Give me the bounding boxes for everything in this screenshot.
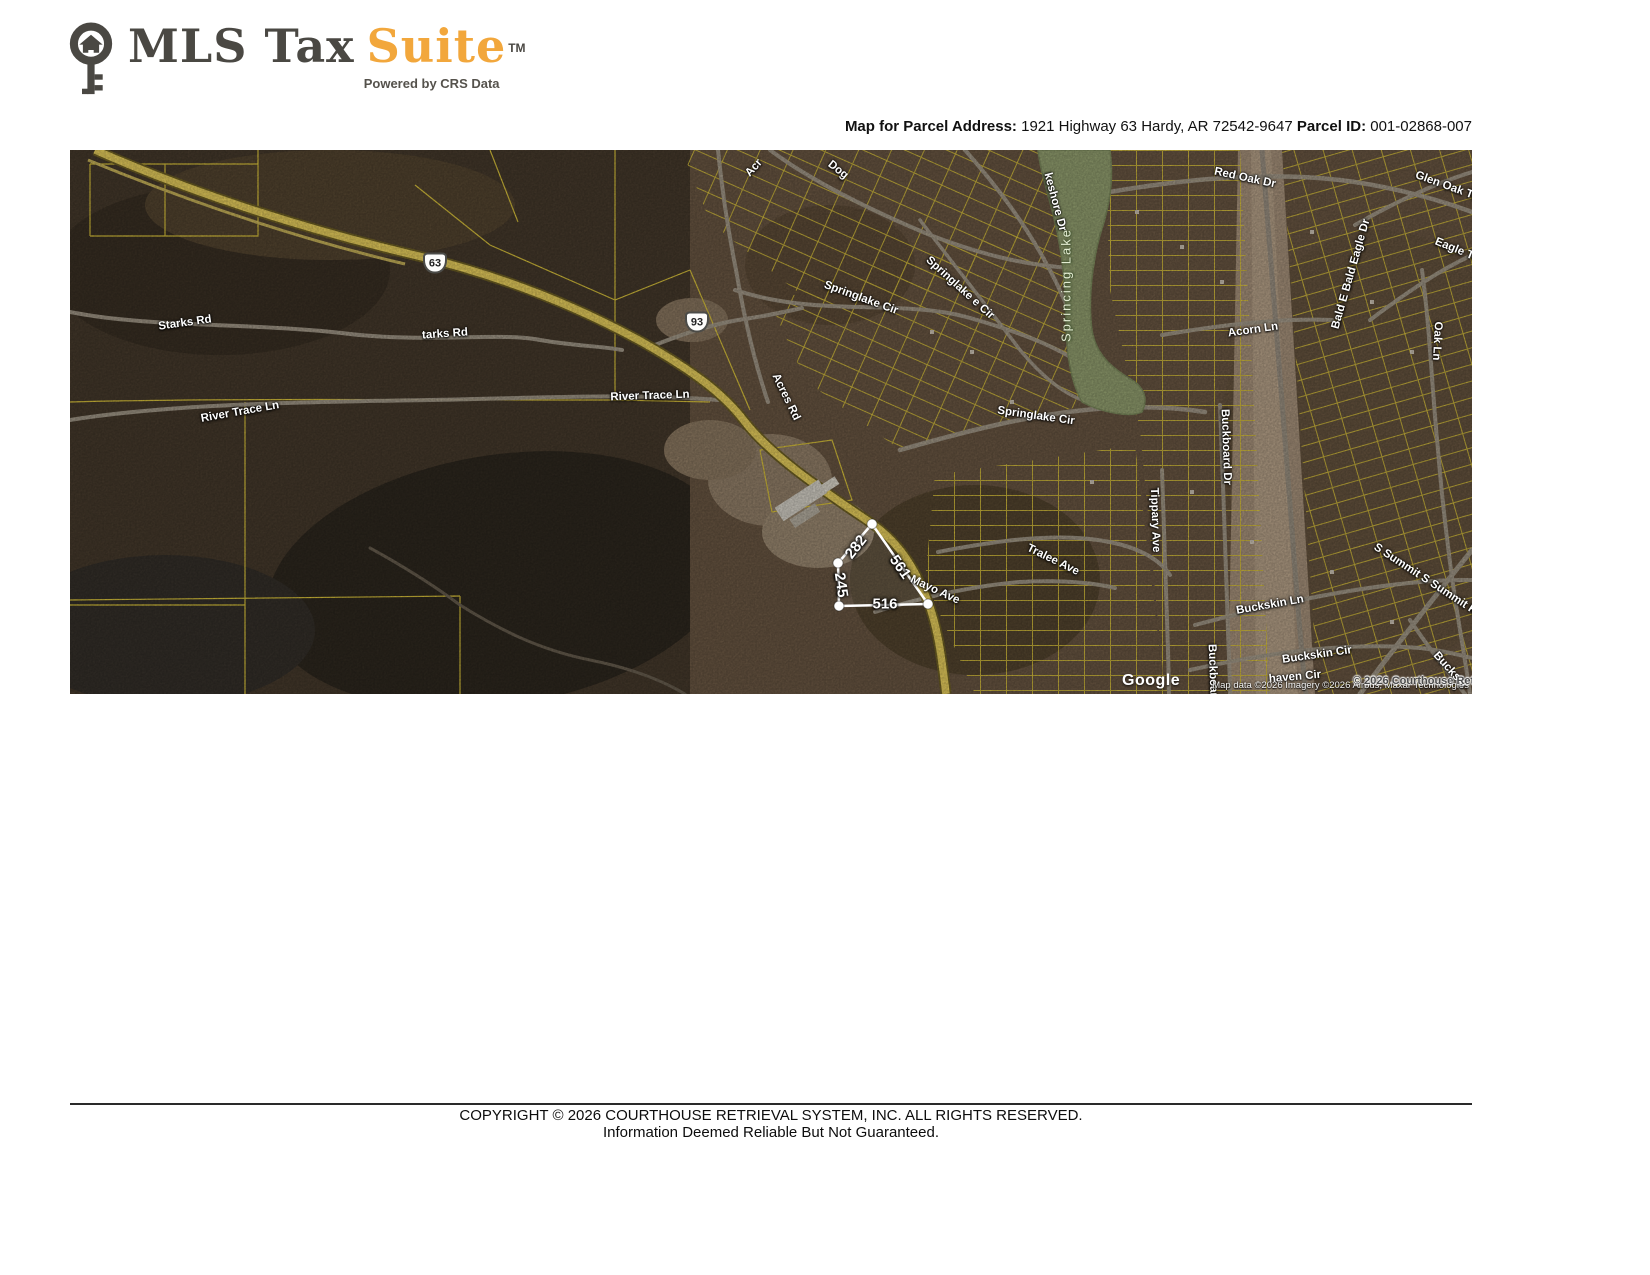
- crs-map-copyright: © 2026 Courthouse Retrieval System, Inc: [1353, 675, 1472, 687]
- page: MLS Tax Suite TM Powered by CRS Data Map…: [0, 0, 1650, 1275]
- mls-tax-suite-logo: MLS Tax Suite TM Powered by CRS Data: [64, 20, 526, 103]
- footer-divider: [70, 1103, 1472, 1105]
- address-label: Map for Parcel Address:: [845, 118, 1017, 135]
- lake-label-sprincing-lake: Sprincing Lake: [1059, 228, 1074, 342]
- google-logo[interactable]: Google: [1122, 672, 1180, 690]
- parcel-dimension-245: 245: [831, 571, 851, 598]
- footer: COPYRIGHT © 2026 COURTHOUSE RETRIEVAL SY…: [70, 1107, 1472, 1141]
- logo-wordmark: MLS Tax Suite TM Powered by CRS Data: [128, 20, 526, 91]
- footer-copyright-line: COPYRIGHT © 2026 COURTHOUSE RETRIEVAL SY…: [70, 1107, 1472, 1124]
- parcel-header: Map for Parcel Address: 1921 Highway 63 …: [845, 118, 1472, 135]
- footer-disclaimer-line: Information Deemed Reliable But Not Guar…: [70, 1124, 1472, 1141]
- parcel-id-label: Parcel ID:: [1297, 118, 1366, 135]
- parcel-dimension-516: 516: [872, 596, 897, 613]
- key-icon: [64, 20, 118, 103]
- logo-text-suite: Suite: [367, 20, 507, 72]
- logo-text-mls-tax: MLS Tax: [128, 20, 355, 72]
- parcel-id-value: 001-02868-007: [1370, 118, 1472, 135]
- logo-tagline: Powered by CRS Data: [128, 76, 526, 91]
- road-label-oak-ln: Oak Ln: [1430, 321, 1444, 361]
- address-value: 1921 Highway 63 Hardy, AR 72542-9647: [1021, 118, 1293, 135]
- parcel-map[interactable]: 63 93 Starks Rd tarks Rd River Trace Ln …: [70, 150, 1472, 694]
- road-label-tippary-ave: Tippary Ave: [1148, 487, 1162, 552]
- logo-tm-mark: TM: [508, 22, 525, 74]
